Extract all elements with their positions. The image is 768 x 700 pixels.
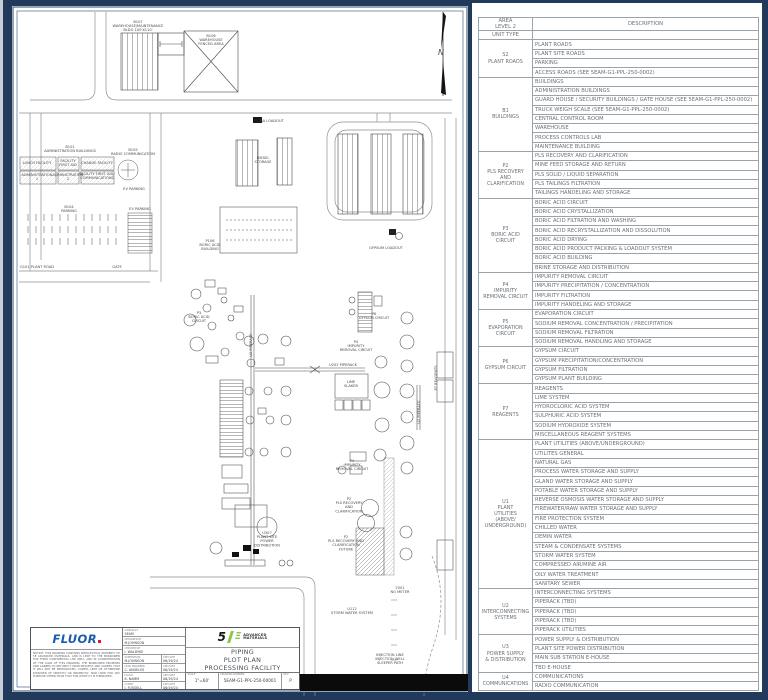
description-cell: CHILLED WATER [533, 523, 759, 532]
description-cell: SODIUM REMOVAL FILTRATION [533, 328, 759, 337]
description-cell: BORIC ACID FILTRATION AND WASHING [533, 217, 759, 226]
description-cell: LIME SYSTEM [533, 393, 759, 402]
legend-row: P5 EVAPORATION CIRCUITEVAPORATION CIRCUI… [479, 310, 759, 319]
description-cell: PROCESS CONTROLS LAB [533, 133, 759, 142]
description-cell: ACCESS ROADS (SEE 5EAM-G1-PPL-250-0002) [533, 68, 759, 77]
approval-row: CHECKED BYJ. WALDYKE [123, 646, 185, 655]
description-cell: MISCELLANEOUS REAGENT SYSTEMS [533, 430, 759, 439]
drawing-title-line2: PLOT PLAN [224, 656, 262, 664]
description-cell: UTILITES GENERAL [533, 449, 759, 458]
approval-name: C. ANGELES [125, 668, 160, 672]
description-cell: MAIN SUB STATION E-HOUSE [533, 654, 759, 663]
description-cell: COMPRESSED AIR/MINE AIR [533, 561, 759, 570]
plan-label: GYPSUM LOADOUT [369, 246, 403, 250]
plan-label: INJECTION LINEINJECTION WELLSLEEPER PATH [375, 653, 404, 665]
description-cell: GYPSUM FILTRATION [533, 365, 759, 374]
plan-label: U2 PIPERACK [417, 400, 421, 424]
approval-name: M.JOHNSON [125, 641, 184, 645]
unit-type-cell: P2 PLS RECOVERY AND CLARIFICATION [479, 152, 533, 198]
drawing-sheet: N B107WAREHOUSE/MAINTENANCEBLDG 100'X110… [0, 0, 470, 700]
title-block-bottom-strip: SCALE 1"=60' DRAWING NUMBER 5EAM-G1-PPL-… [186, 672, 299, 689]
unit-type-cell: U2 INTERCONNECTING SYSTEMS [479, 588, 533, 634]
description-cell: WAREHOUSE [533, 124, 759, 133]
plan-label: BA LOADOUT [260, 119, 284, 123]
description-cell: CENTRAL CONTROL ROOM [533, 114, 759, 123]
description-cell: PLS TAILINGS FILTRATION [533, 179, 759, 188]
plan-label: U2 PIPERACK [249, 333, 253, 357]
description-cell: PIPERACK (TBD) [533, 616, 759, 625]
description-cell: TAILINGS HANDELING AND STORAGE [533, 189, 759, 198]
description-cell: OILY WATER TREATMENT [533, 570, 759, 579]
unit-type-cell: U3 POWER SUPPLY & DISTRIBUTION [479, 635, 533, 672]
description-cell: POTABLE WATER STORAGE AND SUPPLY [533, 486, 759, 495]
legend-row: P6 GYPSUM CIRCUITGYPSUM CIRCUIT [479, 347, 759, 356]
description-cell: PLANT UTILITIES (ABOVE/UNDERGROUND) [533, 440, 759, 449]
title-block-left: FLUOR NOTICE: THIS DRAWING CONTAINS INTE… [31, 628, 123, 689]
unit-type-cell: P4 IMPURITY REMOVAL CIRCUIT [479, 272, 533, 309]
description-cell: MINE FEED STORAGE AND RETURN [533, 161, 759, 170]
description-cell: EVAPORATION CIRCUIT [533, 310, 759, 319]
unit-type-cell: P5 EVAPORATION CIRCUIT [479, 310, 533, 347]
five-e-logo-text: ADVANCEDMATERIALS [243, 634, 267, 642]
description-cell: HYDROCLORIC ACID SYSTEM [533, 403, 759, 412]
plan-label: EV PARKING [123, 187, 145, 191]
drawing-title-line3: PROCESSING FACILITY [204, 664, 280, 672]
description-cell: IMPURITY REMOVAL CIRCUIT [533, 272, 759, 281]
legend-header-row-1: AREALEVEL 2 DESCRIPTION [479, 18, 759, 31]
approval-date-cell: APP DATE06/19/24 [161, 682, 185, 690]
unit-type-cell: B1 BUILDINGS [479, 77, 533, 151]
description-cell: MAINTENANCE BUILDING [533, 142, 759, 151]
approval-date-cell: APP DATE06/19/24 [161, 655, 185, 663]
description-cell: SODIUM HYDROXIDE SYSTEM [533, 421, 759, 430]
five-e-logo: 5Ξ ADVANCEDMATERIALS [186, 628, 299, 648]
description-cell: STEAM & CONDENSATE SYSTEMS [533, 542, 759, 551]
description-cell: BORIC ACID CIRCUIT [533, 198, 759, 207]
description-cell: PIPERACK (TBD) [533, 598, 759, 607]
approval-date-cell: APP DATE06/19/24 [161, 664, 185, 672]
description-cell: BUILDINGS [533, 77, 759, 86]
description-cell: SANITARY SEWER [533, 579, 759, 588]
drawing-number-cell: DRAWING NUMBER 5EAM-G1-PPL-250-00001 [219, 673, 282, 689]
description-cell: DEMIN WATER [533, 533, 759, 542]
description-cell: BORIC ACID RECRYSTALLIZATION AND DISSOLU… [533, 226, 759, 235]
legend-row: P4 IMPURITY REMOVAL CIRCUITIMPURITY REMO… [479, 272, 759, 281]
description-cell: PLS RECOVERY AND CLARIFICATION [533, 152, 759, 161]
description-cell: FIREWATER/RAW WATER STORAGE AND SUPPLY [533, 505, 759, 514]
fluor-logo-dot [98, 640, 101, 643]
approval-name: 5EAM [125, 632, 184, 636]
five-e-logo-slash [227, 631, 234, 643]
description-cell: PIPERACK (TBD) [533, 607, 759, 616]
description-cell: NATURAL GAS [533, 458, 759, 467]
approval-row: CLIENTJ. FUSSELLAPP DATE06/19/24 [123, 682, 185, 690]
description-cell: BORIC ACID PRODUCT PACKING & LOADOUT SYS… [533, 245, 759, 254]
description-cell: POWER SUPPLY & DISTRIBUTION [533, 635, 759, 644]
plan-label: CHANGE FACILITY [81, 161, 114, 165]
empty-header-cell [533, 31, 759, 40]
description-cell: TBD E-HOUSE [533, 663, 759, 672]
description-cell: PLANT SITE ROADS [533, 49, 759, 58]
legend-row: U3 POWER SUPPLY & DISTRIBUTIONPOWER SUPP… [479, 635, 759, 644]
unit-type-cell: P3 BORIC ACID CIRCUIT [479, 198, 533, 272]
plot-plan: N B107WAREHOUSE/MAINTENANCEBLDG 100'X110… [0, 0, 470, 700]
plan-label: FACILITYFIRST AID [59, 159, 77, 167]
description-cell: BORIC ACID DRYING [533, 235, 759, 244]
description-cell: GUARD HOUSE / SECURITY BUILDINGS / GATE … [533, 96, 759, 105]
approval-name: K. NAMM [125, 677, 160, 681]
approval-row: SUPERVISORM.JOHNSONAPP DATE06/19/24 [123, 655, 185, 664]
legend-row: B1 BUILDINGSBUILDINGS [479, 77, 759, 86]
description-cell: SULPHURIC ACID SYSTEM [533, 412, 759, 421]
description-cell: IMPURITY FILTRATION [533, 291, 759, 300]
plan-label: LUNCH FACILITY [23, 161, 52, 165]
plan-label: EV PARKING [129, 207, 151, 211]
legend-row: P7 REAGENTSREAGENTS [479, 384, 759, 393]
approval-name: J. WALDYKE [125, 650, 184, 654]
plan-label: U202 PIPERACK [329, 363, 358, 367]
legend-row: P3 BORIC ACID CIRCUITBORIC ACID CIRCUIT [479, 198, 759, 207]
description-cell: TRUCK WEIGH SCALE (SEE 5EAM-G1-PPL-250-0… [533, 105, 759, 114]
approval-row: FLUORK. NAMMAPP DATE06/19/24 [123, 673, 185, 682]
drawing-title-line1: PIPING [231, 648, 254, 656]
legend-panel: AREALEVEL 2 DESCRIPTION UNIT TYPE S2 PLA… [472, 3, 762, 692]
description-cell: ADMINISTRATION BUILDINGS [533, 86, 759, 95]
screenshot-root: { "drawing": { "north_label": "N", "labe… [0, 0, 768, 700]
description-cell: GYPSUM PRECIPITATION/CONCENTRATION [533, 356, 759, 365]
legend-table: AREALEVEL 2 DESCRIPTION UNIT TYPE S2 PLA… [478, 17, 759, 691]
description-cell: SODIUM REMOVAL HANDLING AND STORAGE [533, 337, 759, 346]
description-cell: PLANT ROADS [533, 40, 759, 49]
approval-name: J. FUSSELL [125, 686, 160, 690]
description-cell: PLS SOLID / LIQUID SEPARATION [533, 170, 759, 179]
unit-type-header: UNIT TYPE [479, 31, 533, 40]
redacted-box [300, 674, 468, 691]
description-cell: COMMUNICATIONS [533, 672, 759, 681]
description-cell: PLANT SITE POWER DISTRIBUTION [533, 644, 759, 653]
unit-type-cell: P7 REAGENTS [479, 384, 533, 440]
five-e-logo-5: 5 [218, 631, 226, 643]
description-cell: IMPURITY HANDELING AND STORAGE [533, 300, 759, 309]
approval-row: CONTRACT5EAM [123, 628, 185, 637]
description-cell: GYPSUM CIRCUIT [533, 347, 759, 356]
legend-row: S2 PLANT ROADSPLANT ROADS [479, 40, 759, 49]
rev-value: P [282, 676, 299, 683]
description-cell: PROCESS WATER STORAGE AND SUPPLY [533, 468, 759, 477]
approvals-column: CONTRACT5EAMDESIGNED BYM.JOHNSONCHECKED … [123, 628, 186, 689]
scale-cell: SCALE 1"=60' [186, 673, 219, 689]
legend-row: U4 COMMUNICATIONSCOMMUNICATIONS [479, 672, 759, 681]
north-label: N [438, 48, 444, 57]
description-cell: STORM WATER SYSTEM [533, 551, 759, 560]
unit-type-cell: P6 GYPSUM CIRCUIT [479, 347, 533, 384]
approval-name: M.JOHNSON [125, 659, 160, 663]
legend-row: U1 PLANT UTILITIES (ABOVE/ UNDERGROUND)P… [479, 440, 759, 449]
unit-type-cell: S2 PLANT ROADS [479, 40, 533, 77]
notice-text: NOTICE: THIS DRAWING CONTAINS INTELLECTU… [31, 650, 122, 689]
description-cell: PIPERACK UTILITIES [533, 626, 759, 635]
legend-header-row-2: UNIT TYPE [479, 31, 759, 40]
unit-type-cell: U1 PLANT UTILITIES (ABOVE/ UNDERGROUND) [479, 440, 533, 589]
area-level-header: AREALEVEL 2 [479, 18, 533, 31]
plan-label: G101 PLANT ROAD [20, 265, 54, 269]
approval-row: LEAD ENGINEERC. ANGELESAPP DATE06/19/24 [123, 664, 185, 673]
description-cell: BRINE STORAGE AND DISTRIBUTION [533, 263, 759, 272]
description-cell: FIRE PROTECTION SYSTEM [533, 514, 759, 523]
description-cell: BORIC ACID BUILDING [533, 254, 759, 263]
title-block-right: 5Ξ ADVANCEDMATERIALS PIPING PLOT PLAN PR… [186, 628, 299, 689]
drawing-title: PIPING PLOT PLAN PROCESSING FACILITY [186, 648, 299, 672]
description-cell: RADIO COMMUNICATION [533, 681, 759, 690]
description-cell: IMPURITY PRECIPITATION / CONCENTRATION [533, 282, 759, 291]
plan-label: GATE [112, 265, 122, 269]
five-e-logo-e: Ξ [235, 632, 241, 642]
fluor-logo: FLUOR [31, 628, 122, 650]
description-cell: REVERSE OSMOSIS WATER STORAGE AND SUPPLY [533, 496, 759, 505]
description-cell: SODIUM REMOVAL CONCENTRATION / PRECIPITA… [533, 319, 759, 328]
drawing-number-value: 5EAM-G1-PPL-250-00001 [219, 676, 281, 683]
description-cell: INTERCONNECTING SYSTEMS [533, 588, 759, 597]
title-block: FLUOR NOTICE: THIS DRAWING CONTAINS INTE… [30, 627, 300, 690]
description-cell: PARKING [533, 59, 759, 68]
description-cell: REAGENTS [533, 384, 759, 393]
rev-cell: REV P [282, 673, 299, 689]
approval-date-cell: APP DATE06/19/24 [161, 673, 185, 681]
scale-value: 1"=60' [186, 676, 218, 683]
description-cell: GYPSUM PLANT BUILDING [533, 375, 759, 384]
plan-label: P7 REAGENTS [434, 365, 438, 391]
description-cell: GLAND WATER STORAGE AND SUPPLY [533, 477, 759, 486]
plan-label: FACILITY FIRST AID/COMMUNICATIONS [79, 172, 115, 180]
legend-row: P2 PLS RECOVERY AND CLARIFICATIONPLS REC… [479, 152, 759, 161]
legend-row: U2 INTERCONNECTING SYSTEMSINTERCONNECTIN… [479, 588, 759, 597]
description-header: DESCRIPTION [533, 18, 759, 31]
unit-type-cell: U4 COMMUNICATIONS [479, 672, 533, 691]
description-cell: BORIC ACID CRYSTALLIZATION [533, 207, 759, 216]
fluor-logo-text: FLUOR [52, 632, 97, 646]
approval-row: DESIGNED BYM.JOHNSON [123, 637, 185, 646]
